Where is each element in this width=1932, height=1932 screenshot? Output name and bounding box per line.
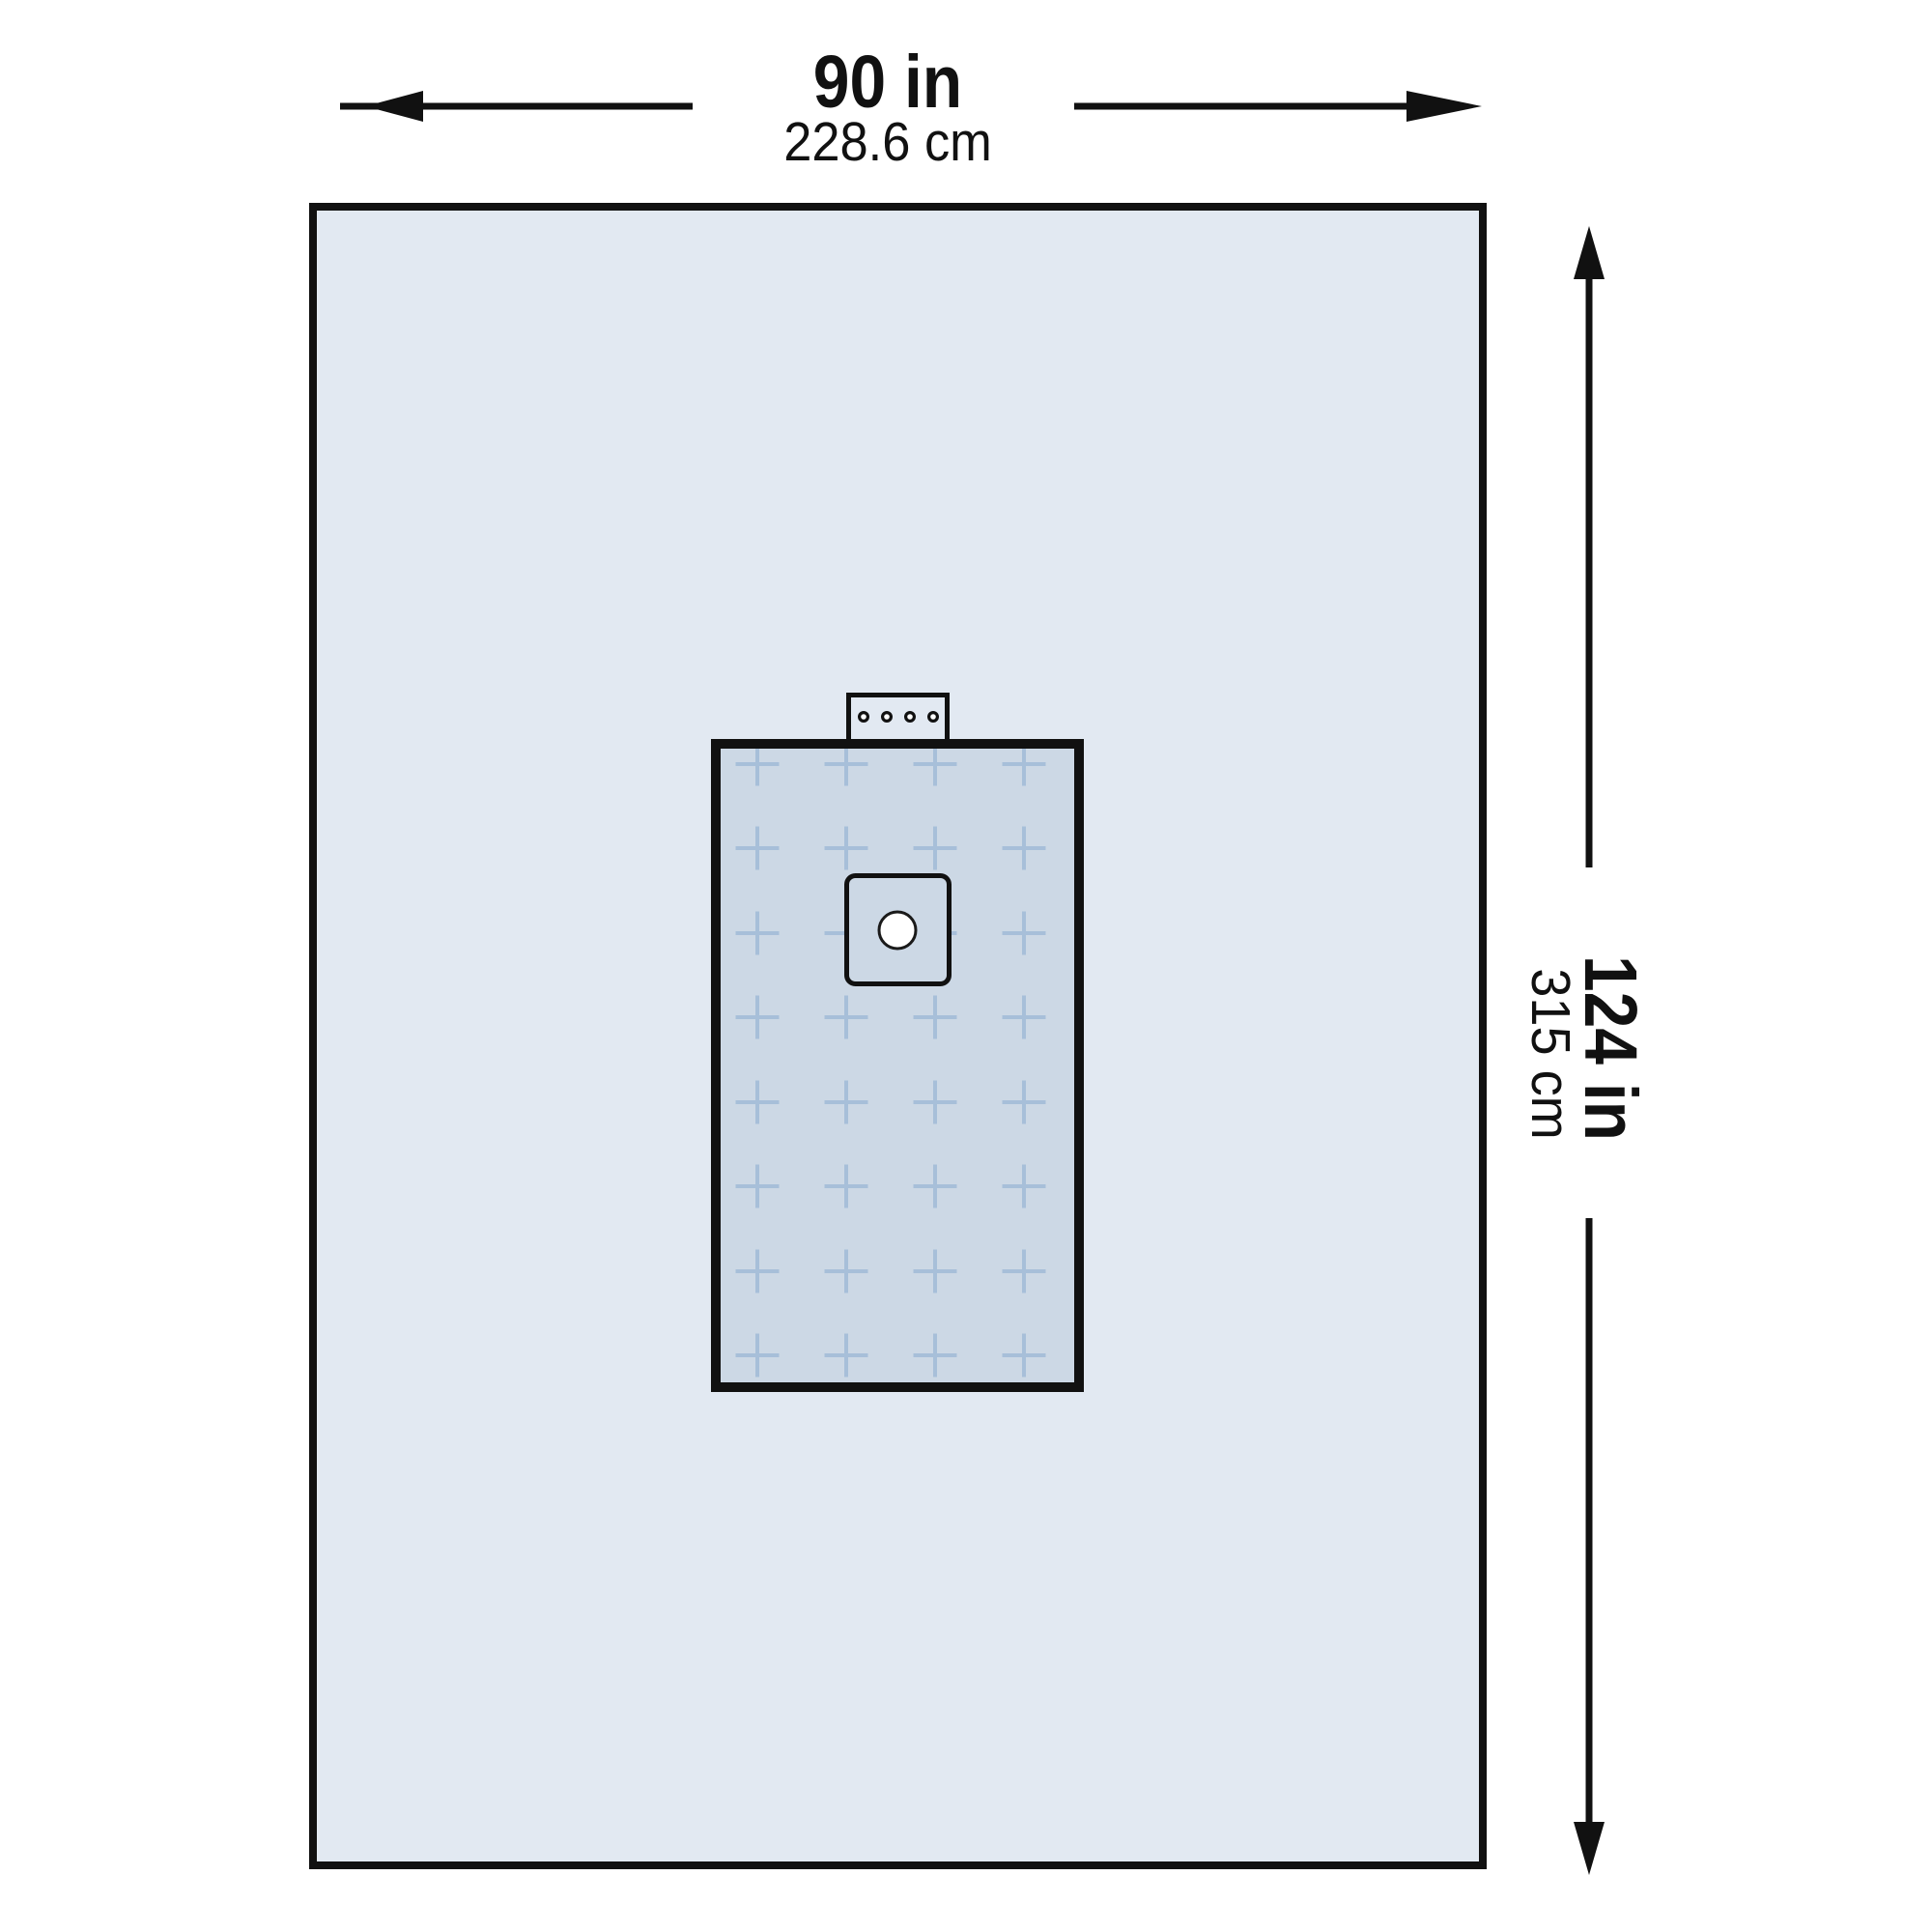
svg-text:228.6 cm: 228.6 cm: [783, 110, 992, 173]
svg-text:315 cm: 315 cm: [1520, 968, 1582, 1140]
